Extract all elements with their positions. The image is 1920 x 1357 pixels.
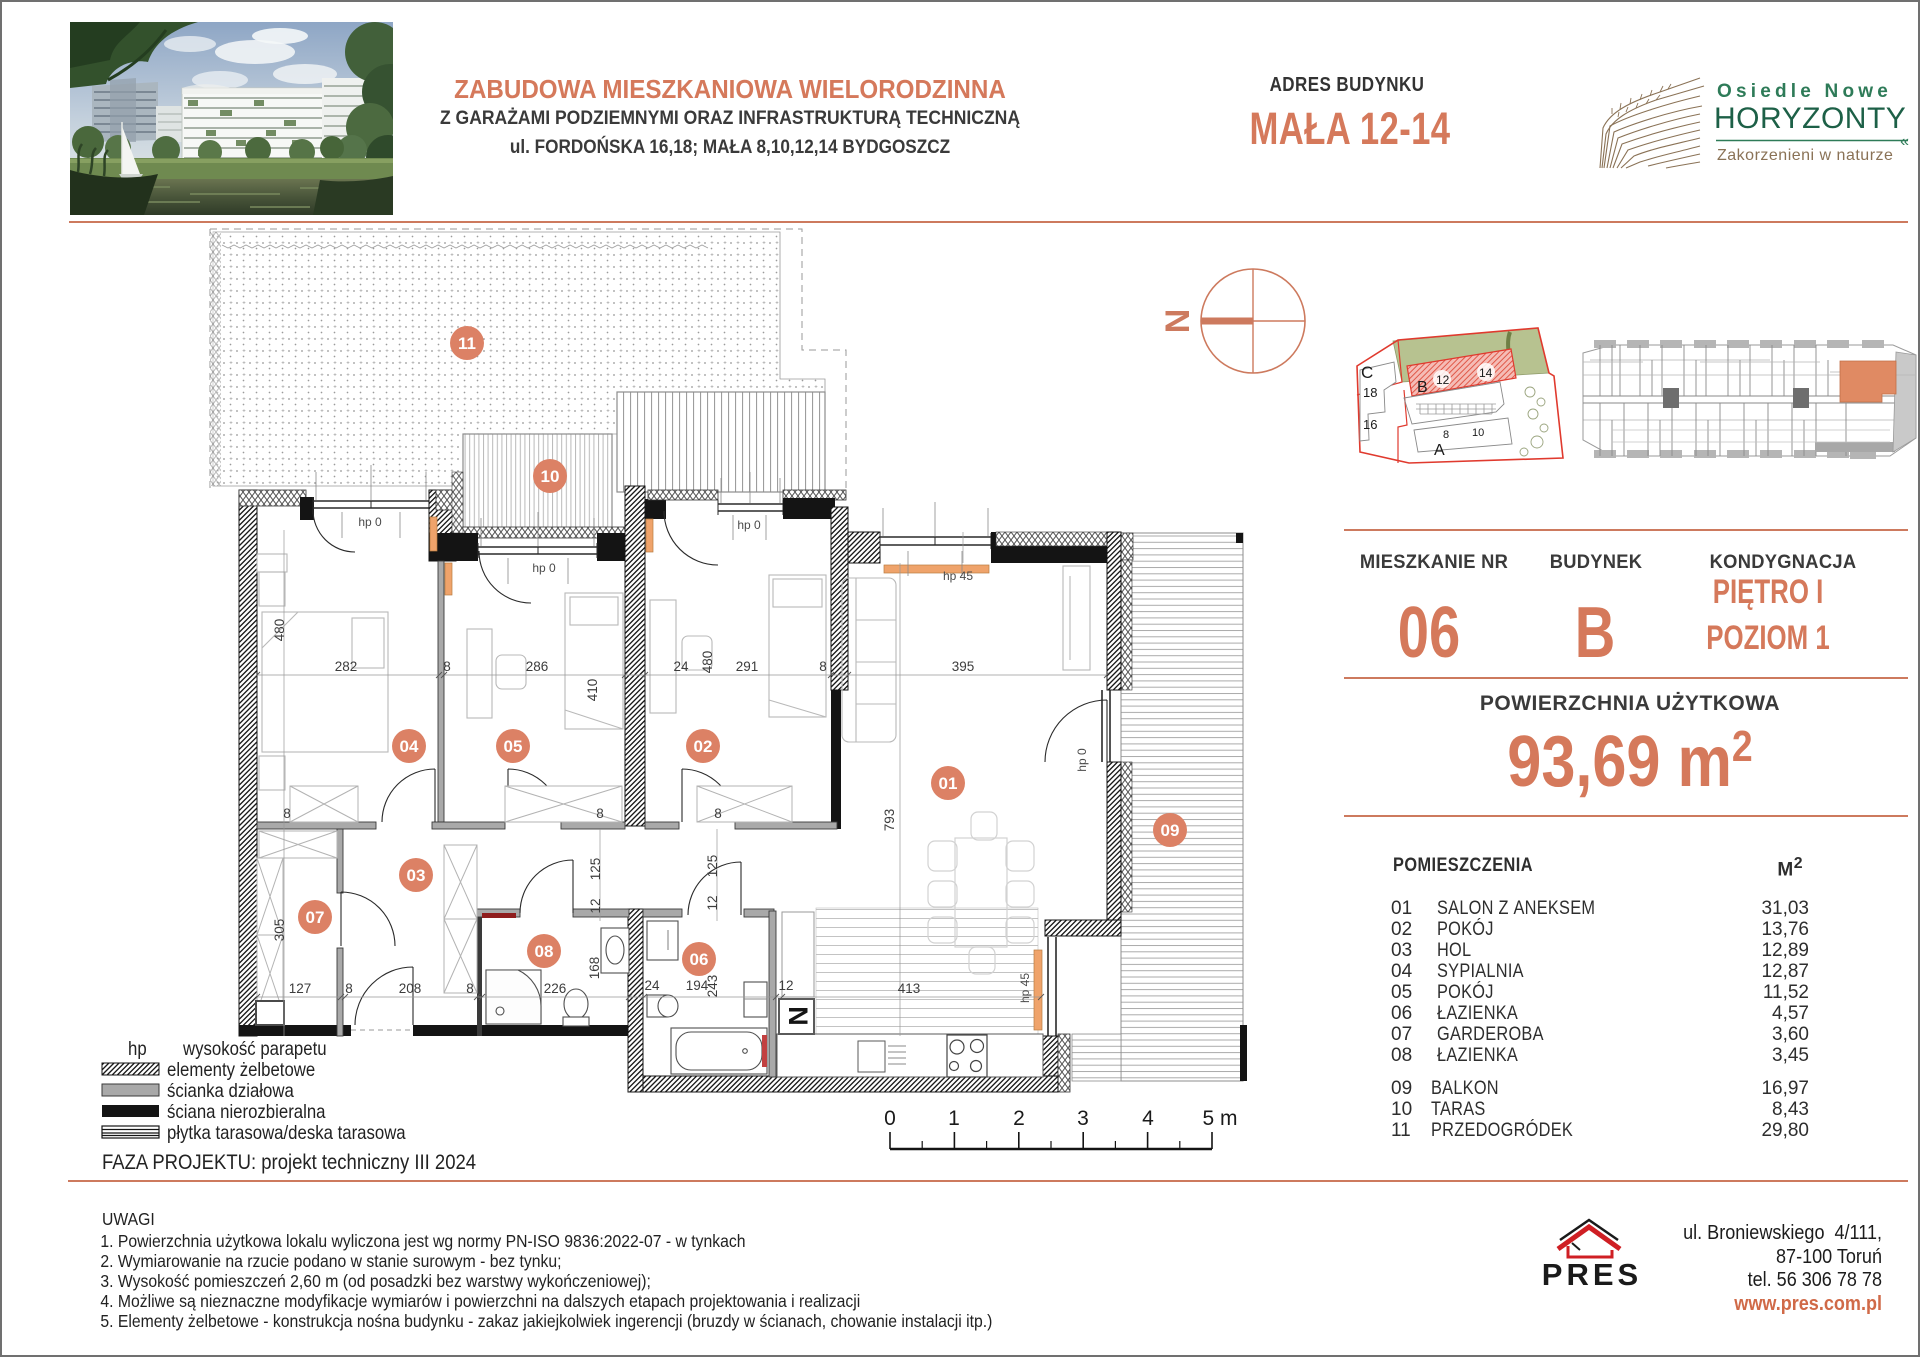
svg-text:10: 10: [541, 467, 560, 486]
svg-text:12: 12: [1436, 373, 1450, 387]
svg-text:C: C: [1361, 363, 1373, 382]
svg-text:480: 480: [272, 619, 287, 642]
svg-text:11: 11: [458, 334, 476, 353]
svg-text:168: 168: [587, 957, 602, 980]
svg-text:125: 125: [705, 855, 720, 878]
svg-text:hp 45: hp 45: [943, 569, 973, 583]
svg-text:305: 305: [272, 919, 287, 942]
svg-text:07: 07: [306, 908, 325, 927]
svg-text:125: 125: [588, 858, 603, 881]
svg-text:226: 226: [544, 981, 567, 996]
svg-text:B: B: [1417, 379, 1428, 396]
svg-text:24: 24: [673, 659, 689, 674]
svg-text:480: 480: [700, 651, 715, 674]
svg-text:8: 8: [819, 659, 827, 674]
svg-text:3: 3: [1077, 1107, 1089, 1130]
svg-text:291: 291: [736, 659, 759, 674]
svg-text:hp 0: hp 0: [1075, 748, 1089, 772]
svg-text:8: 8: [466, 981, 474, 996]
svg-text:02: 02: [694, 737, 713, 756]
svg-text:hp 0: hp 0: [737, 518, 761, 532]
svg-text:8: 8: [596, 806, 604, 821]
svg-text:208: 208: [399, 981, 422, 996]
svg-text:2: 2: [1013, 1107, 1025, 1130]
svg-text:8: 8: [714, 806, 722, 821]
svg-text:243: 243: [705, 975, 720, 998]
svg-text:413: 413: [898, 981, 921, 996]
svg-text:793: 793: [882, 809, 897, 832]
svg-text:1: 1: [948, 1107, 960, 1130]
svg-text:4: 4: [1142, 1107, 1154, 1130]
svg-text:24: 24: [644, 978, 660, 993]
svg-text:01: 01: [939, 774, 958, 793]
svg-text:16: 16: [1363, 417, 1377, 432]
svg-text:8: 8: [283, 806, 291, 821]
svg-text:A: A: [1434, 442, 1445, 459]
svg-text:hp 45: hp 45: [1018, 973, 1032, 1003]
svg-text:05: 05: [504, 737, 523, 756]
svg-text:hp 0: hp 0: [532, 561, 556, 575]
svg-text:8: 8: [443, 659, 451, 674]
svg-text:04: 04: [400, 737, 419, 756]
svg-text:12: 12: [588, 898, 603, 913]
svg-text:03: 03: [407, 866, 426, 885]
svg-text:12: 12: [705, 895, 720, 910]
svg-text:N: N: [1159, 309, 1197, 334]
svg-text:5 m: 5 m: [1202, 1107, 1237, 1130]
svg-text:8: 8: [1443, 429, 1449, 441]
svg-text:286: 286: [526, 659, 549, 674]
svg-text:395: 395: [952, 659, 975, 674]
svg-text:06: 06: [690, 950, 709, 969]
svg-text:09: 09: [1161, 821, 1180, 840]
svg-text:18: 18: [1363, 385, 1377, 400]
svg-text:N: N: [783, 1006, 813, 1026]
svg-text:8: 8: [345, 981, 353, 996]
svg-text:«: «: [1900, 133, 1909, 150]
svg-text:0: 0: [884, 1107, 896, 1130]
svg-text:127: 127: [289, 981, 312, 996]
svg-text:410: 410: [585, 679, 600, 702]
svg-text:14: 14: [1479, 366, 1493, 380]
svg-text:12: 12: [778, 978, 793, 993]
svg-text:10: 10: [1472, 427, 1484, 439]
svg-text:282: 282: [335, 659, 358, 674]
svg-text:08: 08: [535, 942, 554, 961]
svg-text:hp 0: hp 0: [358, 515, 382, 529]
